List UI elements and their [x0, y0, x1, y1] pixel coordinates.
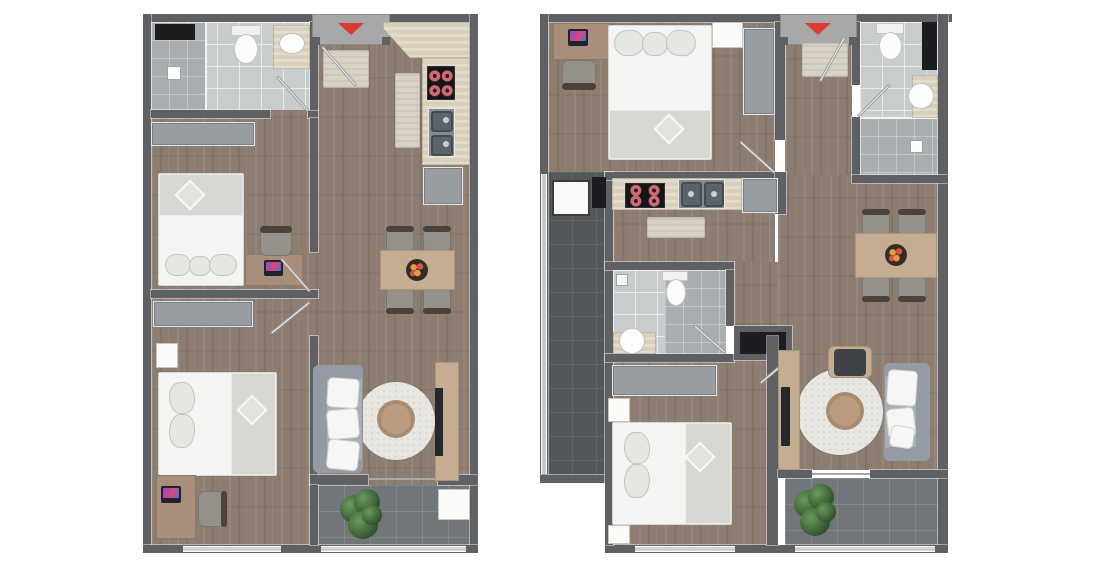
- wall: [605, 354, 734, 362]
- tv-icon: [435, 388, 443, 456]
- nightstand: [608, 525, 630, 544]
- wall: [390, 14, 478, 22]
- bed-pillow: [642, 32, 668, 56]
- kitchen-mat: [395, 73, 420, 148]
- stove-icon: [427, 66, 455, 100]
- chair-back: [862, 209, 890, 215]
- window: [541, 174, 547, 474]
- wardrobe: [743, 28, 775, 115]
- laptop-screen: [570, 31, 586, 41]
- plan-b: [540, 14, 952, 553]
- door-jamb: [849, 37, 857, 45]
- sofa-cushion: [326, 408, 360, 441]
- sofa-backrest: [313, 365, 327, 473]
- wardrobe: [151, 122, 255, 146]
- fruit-bowl-icon: [885, 244, 907, 266]
- wall: [310, 475, 368, 485]
- plant-leaf: [362, 505, 382, 525]
- floorplan-render: [0, 0, 1100, 571]
- wall: [870, 470, 948, 478]
- sliding-door: [368, 478, 438, 480]
- washing-machine-icon: [552, 180, 590, 216]
- sofa-cushion: [886, 369, 918, 407]
- shower-head-icon: [616, 274, 628, 286]
- shower-head-icon: [910, 140, 923, 153]
- kitchen-sink-icon: [678, 179, 725, 209]
- sofa-cushion: [326, 438, 361, 471]
- stove-icon: [625, 183, 665, 208]
- plan-a: [143, 14, 478, 553]
- balcony-cabinet: [438, 489, 470, 520]
- tv-icon: [781, 387, 790, 446]
- laptop-icon: [568, 29, 588, 46]
- wardrobe: [612, 365, 717, 396]
- sofa-armrest: [884, 447, 930, 461]
- chair-back: [423, 308, 451, 314]
- wall: [540, 14, 780, 22]
- terrace-floor: [548, 172, 605, 475]
- wall: [151, 290, 318, 298]
- fridge-icon: [742, 178, 778, 213]
- coffee-table: [826, 392, 864, 430]
- wall: [852, 117, 860, 175]
- storage-niche: [922, 22, 937, 70]
- entrance-arrow-icon: [805, 23, 831, 35]
- toilet-icon: [234, 34, 258, 64]
- wardrobe: [153, 301, 253, 327]
- sliding-door: [812, 473, 870, 475]
- door-jamb: [780, 37, 788, 45]
- door-jamb: [312, 37, 320, 45]
- window: [321, 546, 466, 552]
- nightstand: [712, 22, 743, 48]
- bed-pillow: [189, 256, 211, 276]
- wall: [310, 485, 318, 545]
- sink-icon: [908, 83, 934, 109]
- shower-area: [860, 118, 938, 175]
- chair-back: [221, 491, 227, 527]
- bed-blanket: [685, 423, 731, 524]
- chair-back: [423, 226, 451, 232]
- wall: [470, 14, 478, 553]
- chair-back: [386, 226, 414, 232]
- entrance-arrow-icon: [338, 23, 364, 35]
- storage-niche: [155, 24, 195, 40]
- wall: [143, 14, 151, 553]
- wall: [310, 118, 318, 252]
- fridge-icon: [423, 167, 463, 205]
- toilet-icon: [666, 279, 686, 306]
- chair-back: [898, 209, 926, 215]
- laptop-screen: [163, 488, 179, 498]
- kitchen-mat: [647, 217, 705, 238]
- bed-pillow: [165, 254, 191, 276]
- laptop-icon: [264, 260, 283, 276]
- fruit-bowl-icon: [406, 259, 428, 281]
- sink-drain: [443, 141, 449, 147]
- sink-icon: [279, 33, 305, 54]
- door-jamb: [382, 37, 390, 45]
- chair-back: [562, 83, 596, 90]
- wall: [778, 470, 812, 478]
- wall: [540, 475, 613, 483]
- wall: [852, 175, 948, 183]
- armchair-seat: [834, 349, 866, 376]
- shower-head-icon: [167, 66, 181, 80]
- sink-drain: [443, 117, 449, 123]
- sink-basin: [431, 111, 453, 132]
- sofa-cushion: [889, 424, 916, 449]
- sink-icon: [619, 328, 645, 354]
- coffee-table: [377, 400, 415, 438]
- sofa-cushion: [326, 377, 360, 409]
- wall: [143, 14, 312, 22]
- toilet-icon: [879, 32, 902, 60]
- window: [635, 546, 735, 552]
- chair-back: [862, 296, 890, 302]
- potted-plant-icon: [338, 489, 384, 541]
- chair-back: [386, 308, 414, 314]
- wall: [151, 110, 270, 118]
- plant-leaf: [816, 502, 836, 522]
- nightstand: [608, 398, 630, 422]
- utility-panel: [592, 177, 606, 208]
- sink-basin: [431, 135, 453, 156]
- sink-drain: [711, 191, 717, 197]
- shower-screen: [205, 22, 207, 110]
- chair-back: [898, 296, 926, 302]
- wall: [726, 270, 734, 326]
- kitchen-sink-icon: [428, 108, 455, 157]
- window: [795, 546, 935, 552]
- window: [183, 546, 281, 552]
- laptop-icon: [161, 486, 181, 503]
- sink-drain: [688, 191, 694, 197]
- wall: [308, 110, 318, 118]
- potted-plant-icon: [792, 484, 838, 538]
- desk: [156, 475, 196, 539]
- wall: [605, 262, 734, 270]
- chair-back: [260, 226, 292, 233]
- bed-pillow: [209, 254, 237, 276]
- nightstand: [156, 343, 178, 368]
- laptop-screen: [266, 262, 281, 271]
